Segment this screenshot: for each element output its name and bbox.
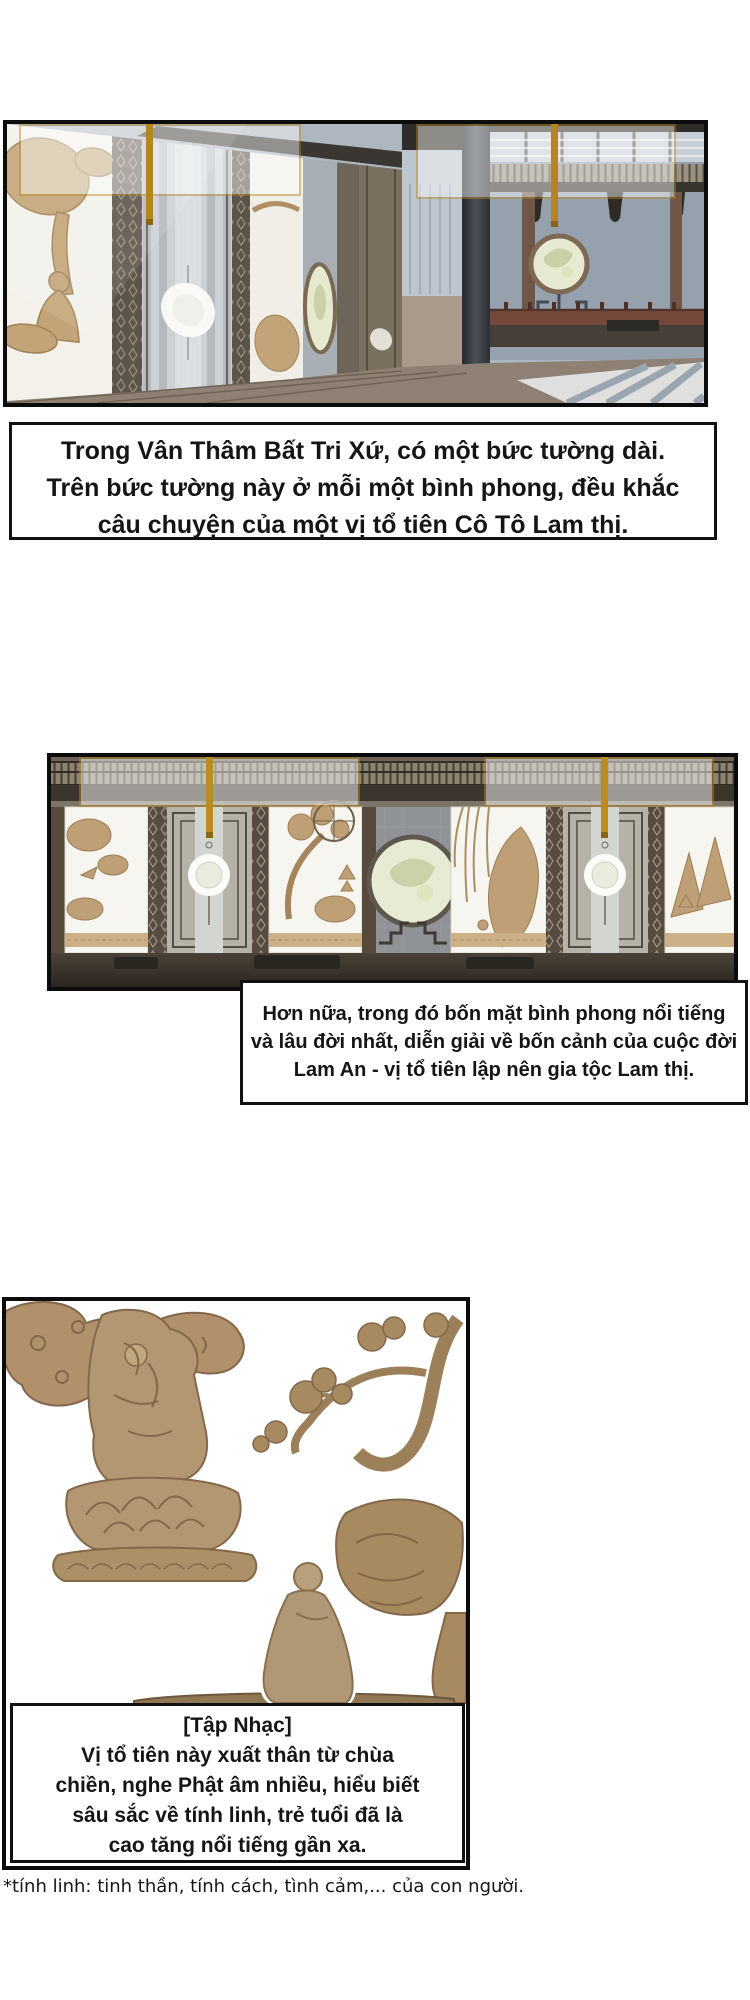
- comic-panel-2: [47, 753, 738, 991]
- comic-page: Trong Vân Thâm Bất Tri Xứ, có một bức tư…: [0, 0, 750, 2000]
- narration-3-line-1: Vị tổ tiên này xuất thân từ chùa: [13, 1741, 462, 1771]
- panel-2-artwork: [51, 757, 734, 987]
- carved-screen: [65, 807, 148, 953]
- narration-3-line-2: chiền, nghe Phật âm nhiều, hiểu biết: [13, 1771, 462, 1801]
- moon-window: [531, 236, 587, 292]
- lattice-strip: [252, 807, 269, 953]
- narration-3-line-3: sâu sắc về tính linh, trẻ tuổi đã là: [13, 1801, 462, 1831]
- narration-box-2: Hơn nữa, trong đó bốn mặt bình phong nổi…: [240, 980, 748, 1105]
- lattice-strip: [148, 807, 167, 953]
- pine-root-mass: [336, 1500, 463, 1615]
- footnote-text: *tính linh: tinh thần, tính cách, tình c…: [3, 1876, 563, 1897]
- moon-window-section: [369, 807, 457, 953]
- comic-panel-1: [3, 120, 708, 407]
- carved-screen: [269, 801, 362, 953]
- narration-3-line-4: cao tăng nổi tiếng gần xa.: [13, 1831, 462, 1861]
- narration-1-line-1: Trong Vân Thâm Bất Tri Xứ, có một bức tư…: [12, 433, 714, 470]
- narration-1-line-3: câu chuyện của một vị tổ tiên Cô Tô Lam …: [12, 507, 714, 544]
- narration-2-line-1: Hơn nữa, trong đó bốn mặt bình phong nổi…: [243, 1000, 745, 1028]
- narration-2-line-2: và lâu đời nhất, diễn giải về bốn cảnh c…: [243, 1028, 745, 1056]
- moon-window: [303, 158, 337, 403]
- carved-screen: [451, 807, 546, 953]
- narration-box-1: Trong Vân Thâm Bất Tri Xứ, có một bức tư…: [9, 422, 717, 540]
- narration-box-3: [Tập Nhạc] Vị tổ tiên này xuất thân từ c…: [10, 1703, 465, 1863]
- wall-pier: [337, 162, 359, 403]
- lattice-strip: [546, 807, 563, 953]
- carved-screen: [665, 807, 734, 953]
- lotus-pedestal: [66, 1478, 240, 1549]
- panel-1-artwork: [7, 124, 704, 403]
- wall-pier: [51, 807, 65, 953]
- lattice-strip: [648, 807, 665, 953]
- narration-3-heading: [Tập Nhạc]: [13, 1711, 462, 1741]
- narration-2-line-3: Lam An - vị tổ tiên lập nên gia tộc Lam …: [243, 1056, 745, 1084]
- carved-base-band: [490, 325, 704, 347]
- narration-1-line-2: Trên bức tường này ở mỗi một bình phong,…: [12, 470, 714, 507]
- bench: [607, 320, 659, 331]
- far-lattice-door: [359, 165, 404, 403]
- moon-window: [369, 837, 457, 925]
